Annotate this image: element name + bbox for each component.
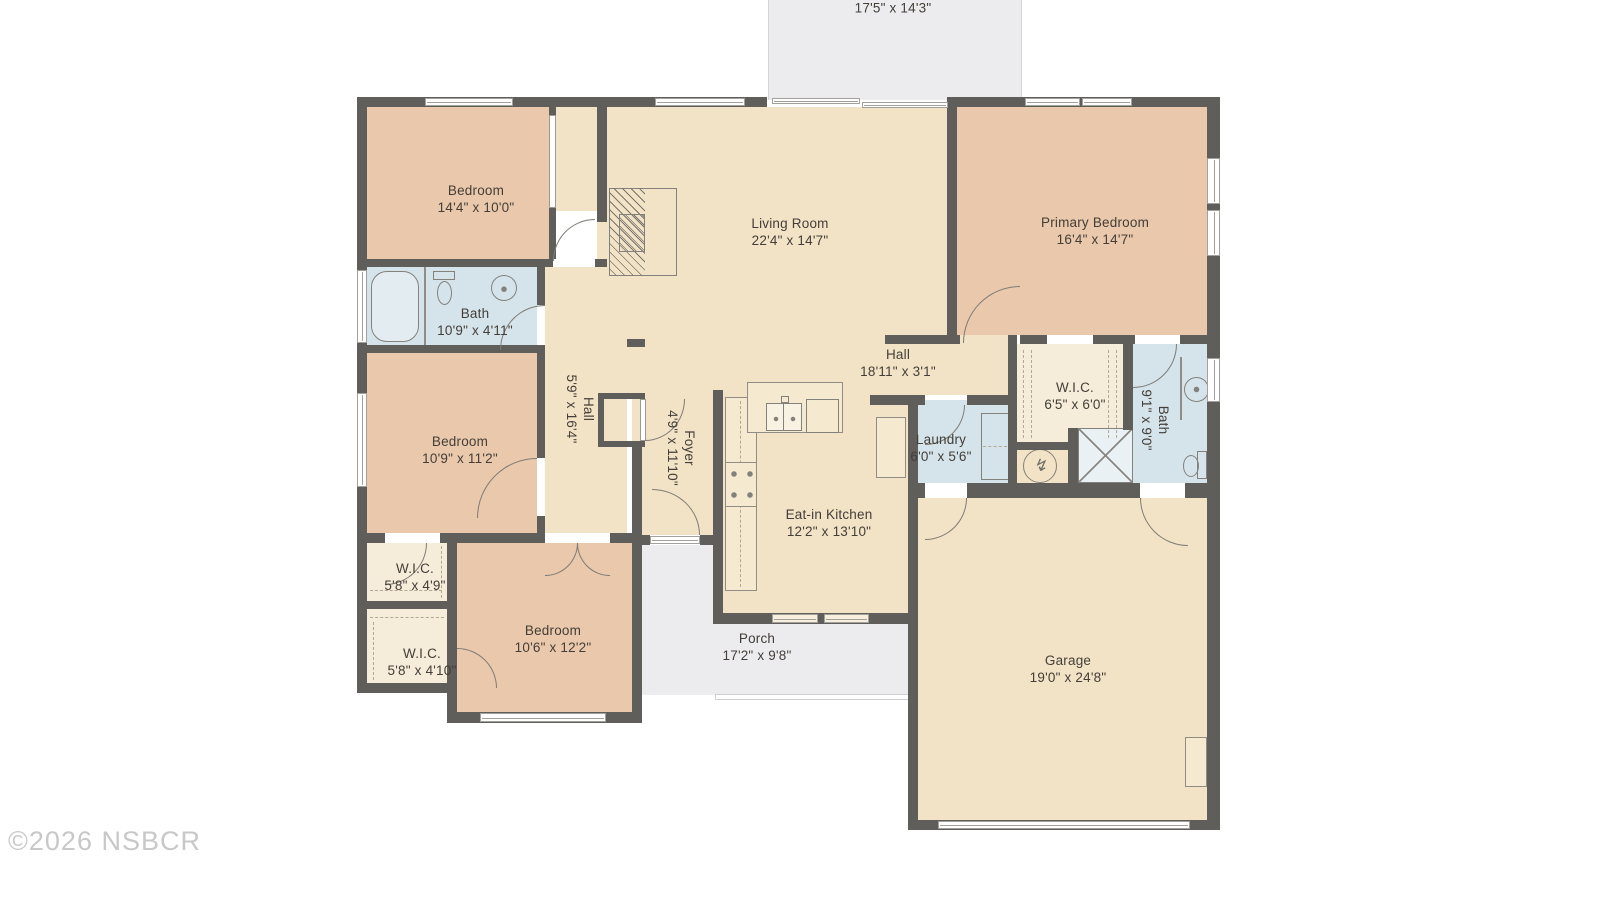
- window: [1207, 158, 1220, 204]
- window: [1207, 210, 1220, 256]
- room-dims: 10'9" x 11'2": [422, 450, 498, 467]
- toilet-tank-fixture: [433, 271, 455, 280]
- room-label-primary-bedroom: Primary Bedroom 16'4" x 14'7": [1041, 214, 1149, 248]
- room-label-living-room: Living Room 22'4" x 14'7": [751, 215, 828, 249]
- wall: [1068, 428, 1078, 483]
- garage-door: [938, 821, 1190, 829]
- fireplace-firebox: [619, 214, 645, 252]
- wall: [885, 335, 960, 344]
- washer-dryer-divider: [983, 446, 1007, 447]
- closet-rod: [1108, 350, 1109, 438]
- wall: [357, 259, 553, 267]
- wall: [967, 483, 1140, 498]
- room-name: Bedroom: [422, 433, 498, 450]
- wall: [1020, 335, 1047, 344]
- room-name: Foyer: [681, 410, 698, 486]
- room-name: Bath: [1155, 389, 1172, 450]
- faucet-icon: [781, 396, 789, 403]
- room-dims: 12'2" x 13'10": [786, 523, 873, 540]
- room-name: Hall: [580, 375, 597, 444]
- room-dims: 5'8" x 4'9": [384, 577, 445, 594]
- wall: [632, 447, 642, 723]
- window: [1025, 98, 1080, 106]
- room-dims: 22'4" x 14'7": [751, 232, 828, 249]
- wall: [1207, 97, 1220, 830]
- sliding-door: [549, 115, 556, 208]
- room-name: Laundry: [910, 431, 971, 448]
- room-name: W.I.C.: [384, 560, 445, 577]
- room-dims: 10'6" x 12'2": [515, 639, 592, 656]
- room-name: Porch: [723, 630, 792, 647]
- wall: [357, 683, 457, 693]
- window: [480, 713, 606, 722]
- shower-fixture: [1078, 428, 1133, 483]
- room-name: W.I.C.: [388, 645, 457, 662]
- wall: [440, 533, 545, 543]
- wall: [598, 393, 604, 447]
- room-label-bath-left: Bath 10'9" x 4'11": [437, 305, 513, 339]
- wall: [537, 516, 545, 533]
- wall: [597, 107, 607, 222]
- room-name: Hall: [860, 346, 936, 363]
- garage-workbench: [1185, 737, 1207, 787]
- front-door-sill: [650, 536, 700, 544]
- water-heater-icon: ↯: [1023, 449, 1057, 483]
- wall: [367, 601, 447, 609]
- wall: [595, 259, 607, 267]
- closet-rod: [1031, 350, 1032, 438]
- room-label-bedroom-mid-left: Bedroom 10'9" x 11'2": [422, 433, 498, 467]
- room-name: Garage: [1030, 652, 1107, 669]
- closet-rod: [1116, 350, 1117, 438]
- room-dims: 6'0" x 5'6": [910, 448, 971, 465]
- closet-rod: [373, 622, 374, 680]
- copyright-watermark: ©2026 NSBCR: [8, 826, 201, 857]
- refrigerator-fixture: [876, 417, 906, 478]
- room-name: W.I.C.: [1044, 379, 1105, 396]
- wall: [447, 533, 457, 723]
- closet-rod: [1023, 350, 1024, 438]
- room-name: Bedroom: [438, 182, 515, 199]
- room-label-eat-in-kitchen: Eat-in Kitchen 12'2" x 13'10": [786, 506, 873, 540]
- sink-fixture: [1184, 377, 1209, 402]
- room-dims: 9'1" x 9'0": [1138, 389, 1155, 450]
- wall: [632, 535, 650, 545]
- room-label-wic-center: W.I.C. 6'5" x 6'0": [1044, 379, 1105, 413]
- wall: [947, 107, 957, 343]
- door-arc: [553, 219, 595, 261]
- window: [772, 614, 818, 623]
- kitchen-sink-fixture: [766, 403, 802, 431]
- wall: [700, 535, 713, 545]
- window: [1207, 358, 1220, 402]
- wall: [1185, 483, 1207, 498]
- closet-rod: [370, 617, 444, 618]
- room-label-bedroom-bottom: Bedroom 10'6" x 12'2": [515, 622, 592, 656]
- wall: [627, 339, 645, 347]
- window: [1082, 98, 1132, 106]
- wall: [967, 395, 1008, 405]
- room-label-bedroom-top-left: Bedroom 14'4" x 10'0": [438, 182, 515, 216]
- room-label-garage: Garage 19'0" x 24'8": [1030, 652, 1107, 686]
- wall: [1017, 442, 1068, 450]
- room-label-hall-vertical: Hall 5'9" x 16'4": [563, 375, 597, 444]
- window: [357, 393, 367, 487]
- wall: [537, 353, 545, 458]
- room-dims: 16'4" x 14'7": [1041, 231, 1149, 248]
- bathtub-fixture: [371, 271, 419, 342]
- toilet-bowl-fixture: [437, 281, 452, 305]
- wall: [598, 393, 645, 399]
- window: [824, 614, 869, 623]
- vanity-counter-line: [1180, 357, 1182, 420]
- room-closet-nook: [552, 107, 602, 211]
- room-dims: 19'0" x 24'8": [1030, 669, 1107, 686]
- sliding-door: [862, 102, 948, 108]
- room-dims: 17'5" x 14'3": [855, 0, 932, 17]
- room-label-wic-lower: W.I.C. 5'8" x 4'10": [388, 645, 457, 679]
- wall: [1123, 335, 1133, 430]
- room-dims: 17'2" x 9'8": [723, 647, 792, 664]
- room-dims: 10'9" x 4'11": [437, 322, 513, 339]
- floor-plan: ↯: [0, 0, 1600, 900]
- wall: [1180, 335, 1207, 344]
- room-dims: 4'9" x 11'10": [664, 410, 681, 486]
- room-dims: 14'4" x 10'0": [438, 199, 515, 216]
- wall: [357, 533, 385, 543]
- wall: [610, 533, 632, 543]
- room-label-laundry: Laundry 6'0" x 5'6": [910, 431, 971, 465]
- room-label-hall-horizontal: Hall 18'11" x 3'1": [860, 346, 936, 380]
- window: [655, 98, 745, 106]
- wall: [537, 259, 545, 305]
- wall: [908, 483, 925, 498]
- room-label-porch: Porch 17'2" x 9'8": [723, 630, 792, 664]
- room-label-wic-upper: W.I.C. 5'8" x 4'9": [384, 560, 445, 594]
- wall: [598, 441, 645, 447]
- room-dims: 5'8" x 4'10": [388, 662, 457, 679]
- room-name: Bath: [437, 305, 513, 322]
- toilet-bowl-fixture: [1183, 455, 1199, 477]
- room-name: Eat-in Kitchen: [786, 506, 873, 523]
- sink-fixture: [491, 275, 517, 301]
- bath-divider-line: [424, 267, 426, 345]
- dishwasher-fixture: [806, 399, 839, 433]
- room-name: Living Room: [751, 215, 828, 232]
- window: [425, 98, 513, 106]
- room-label-bath-right: Bath 9'1" x 9'0": [1138, 389, 1172, 450]
- sliding-door: [772, 98, 860, 104]
- room-label-patio: 17'5" x 14'3": [855, 0, 932, 17]
- room-dims: 18'11" x 3'1": [860, 363, 936, 380]
- window: [357, 270, 367, 343]
- stove-fixture: [725, 462, 757, 507]
- wall: [1008, 335, 1017, 483]
- room-name: Primary Bedroom: [1041, 214, 1149, 231]
- room-name: Bedroom: [515, 622, 592, 639]
- wall: [713, 390, 723, 623]
- room-dims: 5'9" x 16'4": [563, 375, 580, 444]
- porch-step: [715, 694, 913, 700]
- room-label-foyer: Foyer 4'9" x 11'10": [664, 410, 698, 486]
- room-dims: 6'5" x 6'0": [1044, 396, 1105, 413]
